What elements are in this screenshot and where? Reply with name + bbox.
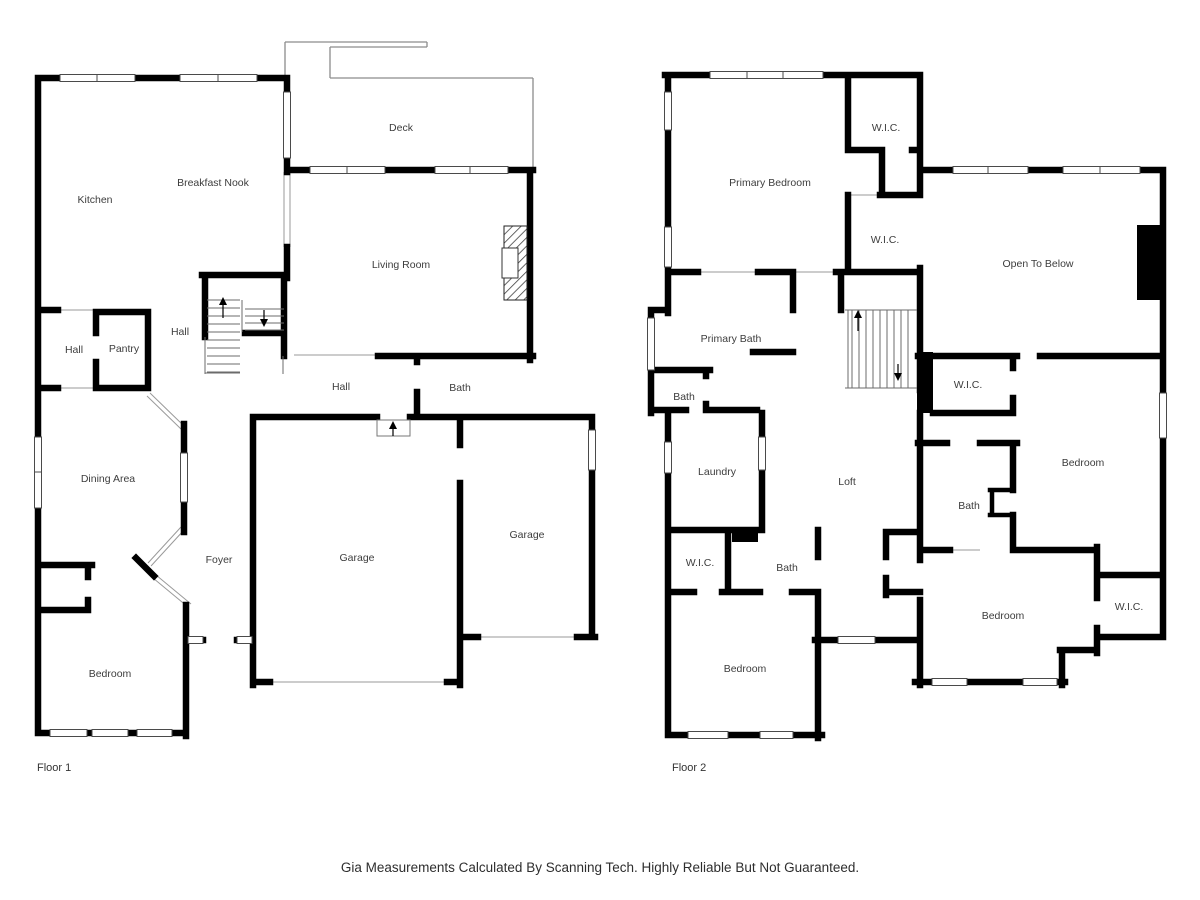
room-label: Bedroom: [724, 663, 767, 675]
room-label: W.I.C.: [871, 234, 900, 246]
room-label: Loft: [838, 476, 856, 488]
room-label: Bath: [776, 562, 798, 574]
room-label: Bedroom: [1062, 457, 1105, 469]
floor2-labels: W.I.C.Primary BedroomW.I.C.Open To Below…: [672, 122, 1143, 774]
garage-step: [377, 420, 410, 436]
floor-2-plan: W.I.C.Primary BedroomW.I.C.Open To Below…: [648, 72, 1167, 775]
room-label: Open To Below: [1002, 258, 1073, 270]
shower-block: [732, 531, 758, 542]
room-label: W.I.C.: [1115, 601, 1144, 613]
disclaimer-text: Gia Measurements Calculated By Scanning …: [0, 860, 1200, 875]
room-label: Foyer: [206, 554, 233, 566]
room-label: Kitchen: [77, 194, 112, 206]
room-label: Garage: [339, 552, 374, 564]
floor2-walls: [651, 75, 1163, 738]
room-label: Primary Bath: [701, 333, 762, 345]
floor-name-label: Floor 2: [672, 762, 706, 774]
room-label: Hall: [65, 344, 83, 356]
room-label: Bedroom: [89, 668, 132, 680]
room-label: Breakfast Nook: [177, 177, 250, 189]
room-label: Bath: [449, 382, 471, 394]
room-label: W.I.C.: [872, 122, 901, 134]
room-label: Hall: [171, 326, 189, 338]
floor-name-label: Floor 1: [37, 762, 71, 774]
room-label: Living Room: [372, 259, 431, 271]
room-label: Bedroom: [982, 610, 1025, 622]
room-label: Bath: [673, 391, 695, 403]
room-label: Deck: [389, 122, 414, 134]
room-label: Laundry: [698, 466, 737, 478]
room-label: W.I.C.: [686, 557, 715, 569]
room-label: Dining Area: [81, 473, 135, 485]
floor-plan-canvas: DeckKitchenBreakfast NookLiving RoomHall…: [0, 0, 1200, 900]
room-label: Hall: [332, 381, 350, 393]
stairs-icon: [845, 310, 917, 388]
room-label: W.I.C.: [954, 379, 983, 391]
room-label: Garage: [509, 529, 544, 541]
room-label: Pantry: [109, 343, 140, 355]
room-label: Bath: [958, 500, 980, 512]
deck-railing: [285, 42, 533, 167]
floor1-labels: DeckKitchenBreakfast NookLiving RoomHall…: [37, 122, 545, 774]
fireplace-icon: [502, 226, 527, 300]
chimney-block: [1137, 225, 1163, 300]
chase-block: [917, 352, 933, 413]
room-label: Primary Bedroom: [729, 177, 811, 189]
floor-plan-image: DeckKitchenBreakfast NookLiving RoomHall…: [0, 0, 1200, 900]
floor-1-plan: DeckKitchenBreakfast NookLiving RoomHall…: [35, 42, 596, 774]
